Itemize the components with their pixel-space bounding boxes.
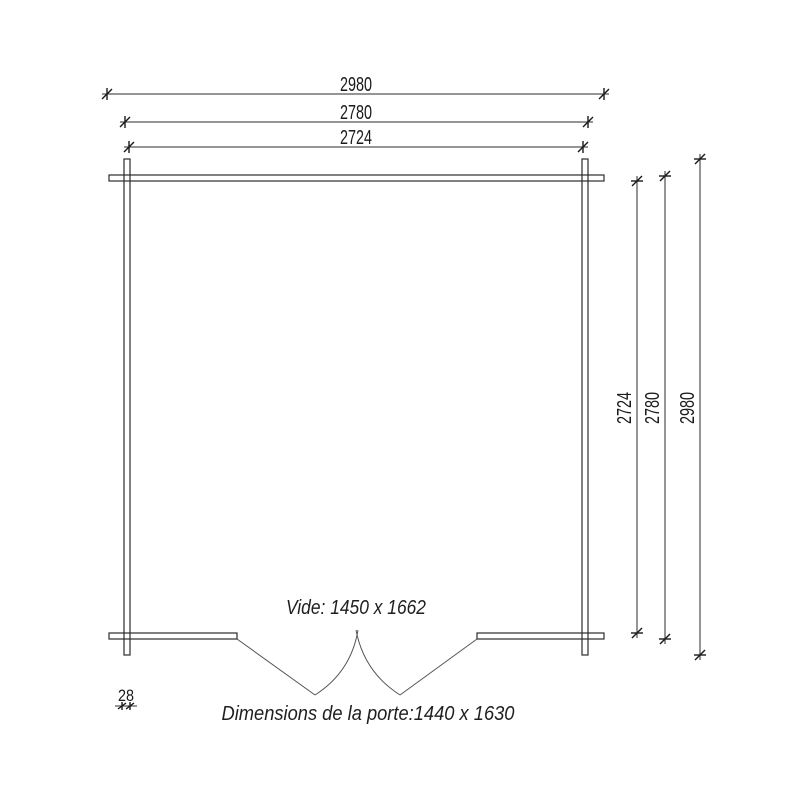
dimension-right-overall: 2980 (677, 154, 706, 660)
wall-bottom-left (109, 633, 237, 639)
clear-opening-label: Vide: 1450 x 1662 (286, 597, 426, 619)
door-swing-arc-left (315, 630, 358, 695)
door-size-label: Dimensions de la porte:1440 x 1630 (222, 703, 515, 725)
wall-left (124, 159, 130, 655)
wall-bottom-right (477, 633, 604, 639)
walls (109, 159, 604, 655)
dimension-right-outer: 2780 (642, 171, 671, 644)
dimension-top-outer: 2780 (120, 102, 593, 128)
door-swing-arc-right (356, 630, 400, 695)
dim-label-wall-thickness: 28 (118, 686, 134, 705)
dim-label-top-outer: 2780 (340, 102, 372, 124)
floor-plan-drawing: 2980 2780 2724 2724 2780 (0, 0, 800, 800)
dimension-top-overall: 2980 (102, 74, 609, 100)
door-leaf-left (237, 639, 315, 695)
wall-top (109, 175, 604, 181)
dim-label-right-outer: 2780 (642, 392, 664, 424)
dimension-right-inner: 2724 (614, 176, 643, 638)
dimension-wall-thickness: 28 (115, 686, 137, 710)
double-door (237, 630, 477, 695)
dim-label-top-overall: 2980 (340, 74, 372, 96)
floor-plan-page: 2980 2780 2724 2724 2780 (0, 0, 800, 800)
door-leaf-right (400, 639, 477, 695)
dim-label-top-inner: 2724 (340, 127, 372, 149)
wall-right (582, 159, 588, 655)
dim-label-right-inner: 2724 (614, 392, 636, 424)
dimension-top-inner: 2724 (124, 127, 588, 153)
dim-label-right-overall: 2980 (677, 392, 699, 424)
